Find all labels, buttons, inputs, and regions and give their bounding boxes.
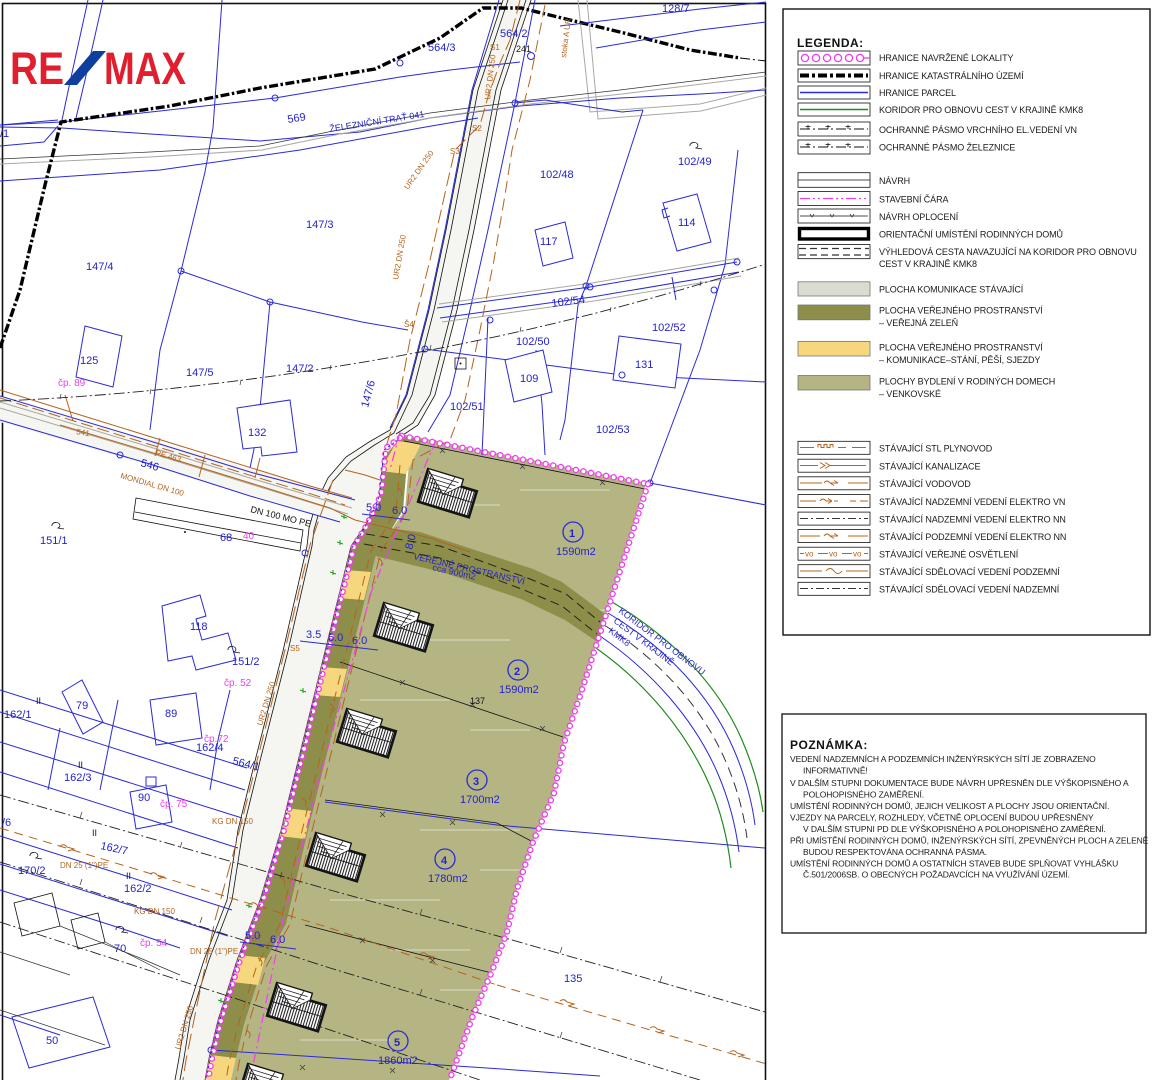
svg-text:HRANICE KATASTRÁLNÍHO ÚZEMÍ: HRANICE KATASTRÁLNÍHO ÚZEMÍ bbox=[879, 71, 1024, 81]
svg-text:114: 114 bbox=[678, 217, 696, 229]
svg-text:MAX: MAX bbox=[104, 43, 186, 94]
svg-text:II: II bbox=[126, 871, 131, 881]
svg-text:– VEŘEJNÁ ZELEŇ: – VEŘEJNÁ ZELEŇ bbox=[879, 318, 958, 328]
svg-text:102/50: 102/50 bbox=[516, 336, 550, 348]
svg-text:128/7: 128/7 bbox=[662, 3, 690, 15]
svg-text:79: 79 bbox=[76, 700, 88, 712]
svg-text:3: 3 bbox=[473, 776, 479, 788]
svg-text:POLOHOPISNÉHO ZAMĚŘENÍ.: POLOHOPISNÉHO ZAMĚŘENÍ. bbox=[803, 789, 924, 799]
svg-text:102/51: 102/51 bbox=[450, 401, 484, 413]
svg-text:147/5: 147/5 bbox=[186, 367, 214, 379]
svg-text:70: 70 bbox=[114, 943, 126, 955]
svg-text:162/1: 162/1 bbox=[4, 709, 32, 721]
svg-text:4: 4 bbox=[441, 855, 448, 867]
svg-text:170/2: 170/2 bbox=[18, 865, 46, 877]
svg-text:147/4: 147/4 bbox=[86, 261, 114, 273]
svg-text:89: 89 bbox=[165, 708, 177, 720]
svg-text:vo: vo bbox=[805, 550, 814, 559]
svg-text:čp. 89: čp. 89 bbox=[58, 378, 86, 389]
svg-text:čp. 75: čp. 75 bbox=[160, 799, 188, 810]
svg-text:S5: S5 bbox=[290, 644, 300, 653]
svg-text:147/3: 147/3 bbox=[306, 219, 334, 231]
svg-text:PLOCHY BYDLENÍ V RODINÝCH DOME: PLOCHY BYDLENÍ V RODINÝCH DOMECH bbox=[879, 377, 1055, 387]
svg-text:/6: /6 bbox=[2, 817, 11, 829]
svg-text:5.0: 5.0 bbox=[328, 632, 343, 644]
svg-text:118: 118 bbox=[190, 621, 208, 633]
svg-text:II: II bbox=[92, 828, 97, 838]
svg-text:5.0: 5.0 bbox=[245, 930, 260, 942]
svg-text:CEST V KRAJINĚ KMK8: CEST V KRAJINĚ KMK8 bbox=[879, 259, 977, 269]
svg-text:DN 25 (1")PE: DN 25 (1")PE bbox=[60, 861, 108, 870]
svg-text:147/2: 147/2 bbox=[286, 363, 314, 375]
svg-text:PLOCHA KOMUNIKACE STÁVAJÍCÍ: PLOCHA KOMUNIKACE STÁVAJÍCÍ bbox=[879, 285, 1024, 295]
svg-text:151/1: 151/1 bbox=[40, 535, 68, 547]
svg-text:II: II bbox=[78, 760, 83, 770]
svg-text:PLOCHA VEŘEJNÉHO PROSTRANSTVÍ: PLOCHA VEŘEJNÉHO PROSTRANSTVÍ bbox=[879, 343, 1043, 353]
svg-text:90: 90 bbox=[138, 792, 150, 804]
svg-text:241: 241 bbox=[516, 44, 531, 54]
svg-text:1780m2: 1780m2 bbox=[428, 873, 468, 885]
svg-text:HRANICE NAVRŽENÉ LOKALITY: HRANICE NAVRŽENÉ LOKALITY bbox=[879, 53, 1013, 63]
svg-text:50: 50 bbox=[46, 1035, 58, 1047]
svg-text:PŘI UMÍSTĚNÍ RODINNÝCH DOMŮ, I: PŘI UMÍSTĚNÍ RODINNÝCH DOMŮ, INŽENÝRSKÝC… bbox=[790, 834, 1149, 845]
svg-text:STÁVAJÍCÍ VEŘEJNÉ OSVĚTLENÍ: STÁVAJÍCÍ VEŘEJNÉ OSVĚTLENÍ bbox=[879, 550, 1019, 560]
svg-text:OCHRANNÉ PÁSMO VRCHNÍHO EL.VED: OCHRANNÉ PÁSMO VRCHNÍHO EL.VEDENÍ VN bbox=[879, 125, 1077, 135]
svg-text:132: 132 bbox=[248, 427, 266, 439]
svg-text:LEGENDA:: LEGENDA: bbox=[797, 36, 864, 50]
svg-text:NÁVRH: NÁVRH bbox=[879, 176, 910, 186]
svg-text:STÁVAJÍCÍ NADZEMNÍ VEDENÍ ELEK: STÁVAJÍCÍ NADZEMNÍ VEDENÍ ELEKTRO NN bbox=[879, 515, 1066, 525]
svg-text:/1: /1 bbox=[0, 128, 9, 140]
svg-text:RE: RE bbox=[10, 43, 64, 94]
svg-text:UMÍSTĚNÍ RODINNÝCH DOMŮ, JEJIC: UMÍSTĚNÍ RODINNÝCH DOMŮ, JEJICH VELIKOST… bbox=[790, 800, 1109, 811]
svg-text:KG DN 150: KG DN 150 bbox=[134, 907, 175, 916]
svg-text:137: 137 bbox=[470, 696, 485, 706]
svg-text:5: 5 bbox=[394, 1037, 400, 1049]
svg-text:VJEZDY NA PARCELY, ROZHLEDY, V: VJEZDY NA PARCELY, ROZHLEDY, VČETNĚ OPLO… bbox=[790, 812, 1094, 822]
svg-text:S1: S1 bbox=[490, 43, 500, 52]
svg-text:STÁVAJÍCÍ NADZEMNÍ VEDENÍ ELEK: STÁVAJÍCÍ NADZEMNÍ VEDENÍ ELEKTRO VN bbox=[879, 497, 1065, 507]
svg-text:INFORMATIVNĚ!: INFORMATIVNĚ! bbox=[803, 765, 868, 775]
svg-text:UMÍSTĚNÍ RODINNÝCH DOMŮ A OSTA: UMÍSTĚNÍ RODINNÝCH DOMŮ A OSTATNÍCH STAV… bbox=[790, 857, 1118, 868]
svg-text:6.0: 6.0 bbox=[392, 505, 407, 517]
svg-text:162/2: 162/2 bbox=[124, 883, 152, 895]
svg-text:564/3: 564/3 bbox=[428, 42, 456, 54]
svg-text:STAVEBNÍ ČÁRA: STAVEBNÍ ČÁRA bbox=[879, 195, 948, 205]
svg-text:HRANICE PARCEL: HRANICE PARCEL bbox=[879, 88, 956, 98]
svg-text:135: 135 bbox=[564, 973, 582, 985]
svg-text:Č.501/2006SB. O OBECNÝCH POŽAD: Č.501/2006SB. O OBECNÝCH POŽADAVCÍCH NA … bbox=[803, 870, 1070, 880]
svg-text:102/53: 102/53 bbox=[596, 424, 630, 436]
svg-text:1860m2: 1860m2 bbox=[378, 1055, 418, 1067]
svg-text:OCHRANNÉ PÁSMO ŽELEZNICE: OCHRANNÉ PÁSMO ŽELEZNICE bbox=[879, 143, 1015, 153]
svg-text:PLOCHA VEŘEJNÉHO PROSTRANSTVÍ: PLOCHA VEŘEJNÉHO PROSTRANSTVÍ bbox=[879, 306, 1043, 316]
svg-text:68: 68 bbox=[220, 532, 232, 544]
svg-text:5.0: 5.0 bbox=[366, 502, 381, 514]
svg-text:1590m2: 1590m2 bbox=[499, 684, 539, 696]
svg-text:– VENKOVSKÉ: – VENKOVSKÉ bbox=[879, 389, 941, 399]
svg-text:V DALŠÍM STUPNI DOKUMENTACE BU: V DALŠÍM STUPNI DOKUMENTACE BUDE NÁVRH U… bbox=[790, 778, 1129, 788]
svg-text:6.0: 6.0 bbox=[352, 635, 367, 647]
svg-text:1700m2: 1700m2 bbox=[460, 794, 500, 806]
svg-text:čp. 52: čp. 52 bbox=[224, 678, 252, 689]
svg-text:40: 40 bbox=[243, 531, 255, 542]
svg-text:564/2: 564/2 bbox=[500, 28, 528, 40]
svg-text:S2: S2 bbox=[472, 124, 482, 133]
svg-text:6.0: 6.0 bbox=[270, 934, 285, 946]
svg-text:3.5: 3.5 bbox=[306, 629, 321, 641]
svg-text:BUDOU RESPEKTOVÁNA OCHRANNÁ PÁ: BUDOU RESPEKTOVÁNA OCHRANNÁ PÁSMA. bbox=[803, 847, 987, 857]
svg-text:STÁVAJÍCÍ PODZEMNÍ VEDENÍ ELEK: STÁVAJÍCÍ PODZEMNÍ VEDENÍ ELEKTRO NN bbox=[879, 532, 1066, 542]
svg-text:1: 1 bbox=[569, 528, 575, 540]
svg-text:109: 109 bbox=[520, 373, 538, 385]
svg-text:čp. 54: čp. 54 bbox=[140, 938, 168, 949]
svg-text:162/3: 162/3 bbox=[64, 772, 92, 784]
svg-text:VEDENÍ NADZEMNÍCH A PODZEMNÍCH: VEDENÍ NADZEMNÍCH A PODZEMNÍCH INŽENÝRSK… bbox=[790, 754, 1096, 764]
svg-text:ORIENTAČNÍ UMÍSTĚNÍ RODINNÝCH: ORIENTAČNÍ UMÍSTĚNÍ RODINNÝCH DOMŮ bbox=[879, 229, 1063, 240]
svg-text:POZNÁMKA:: POZNÁMKA: bbox=[790, 737, 868, 752]
svg-text:vo: vo bbox=[829, 550, 838, 559]
svg-text:STÁVAJÍCÍ VODOVOD: STÁVAJÍCÍ VODOVOD bbox=[879, 479, 971, 489]
svg-text:151/2: 151/2 bbox=[232, 656, 260, 668]
svg-text:VÝHLEDOVÁ CESTA NAVAZUJÍCÍ NA: VÝHLEDOVÁ CESTA NAVAZUJÍCÍ NA KORIDOR PR… bbox=[879, 247, 1137, 257]
svg-text:STÁVAJÍCÍ SDĚLOVACÍ VEDENÍ POD: STÁVAJÍCÍ SDĚLOVACÍ VEDENÍ PODZEMNÍ bbox=[879, 567, 1060, 577]
svg-text:– KOMUNIKACE–STÁNÍ, PĚŠÍ, SJEZ: – KOMUNIKACE–STÁNÍ, PĚŠÍ, SJEZDY bbox=[879, 355, 1040, 365]
svg-text:DN 25 (1")PE: DN 25 (1")PE bbox=[190, 947, 238, 956]
svg-text:NÁVRH OPLOCENÍ: NÁVRH OPLOCENÍ bbox=[879, 212, 959, 222]
svg-text:STÁVAJÍCÍ KANALIZACE: STÁVAJÍCÍ KANALIZACE bbox=[879, 462, 980, 472]
svg-text:125: 125 bbox=[80, 355, 98, 367]
svg-text:vo: vo bbox=[853, 550, 862, 559]
svg-text:V DALŠÍM STUPNI PD DLE VÝŠKOPI: V DALŠÍM STUPNI PD DLE VÝŠKOPISNÉHO A PO… bbox=[803, 824, 1106, 834]
svg-text:S3: S3 bbox=[450, 147, 460, 156]
svg-text:102/48: 102/48 bbox=[540, 169, 574, 181]
svg-text:1590m2: 1590m2 bbox=[556, 546, 596, 558]
svg-text:STÁVAJÍCÍ STL PLYNOVOD: STÁVAJÍCÍ STL PLYNOVOD bbox=[879, 444, 993, 454]
svg-text:162/4: 162/4 bbox=[196, 742, 224, 754]
svg-text:102/49: 102/49 bbox=[678, 156, 712, 168]
svg-text:131: 131 bbox=[635, 359, 653, 371]
svg-text:Š4: Š4 bbox=[404, 320, 414, 329]
svg-text:102/52: 102/52 bbox=[652, 322, 686, 334]
svg-text:KG DN 150: KG DN 150 bbox=[212, 817, 253, 826]
svg-text:KORIDOR PRO OBNOVU CEST V KRAJ: KORIDOR PRO OBNOVU CEST V KRAJINĚ KMK8 bbox=[879, 105, 1083, 115]
svg-text:STÁVAJÍCÍ SDĚLOVACÍ VEDENÍ NAD: STÁVAJÍCÍ SDĚLOVACÍ VEDENÍ NADZEMNÍ bbox=[879, 585, 1060, 595]
svg-text:2: 2 bbox=[514, 666, 520, 678]
svg-text:117: 117 bbox=[540, 236, 558, 248]
svg-text:II: II bbox=[36, 696, 41, 706]
